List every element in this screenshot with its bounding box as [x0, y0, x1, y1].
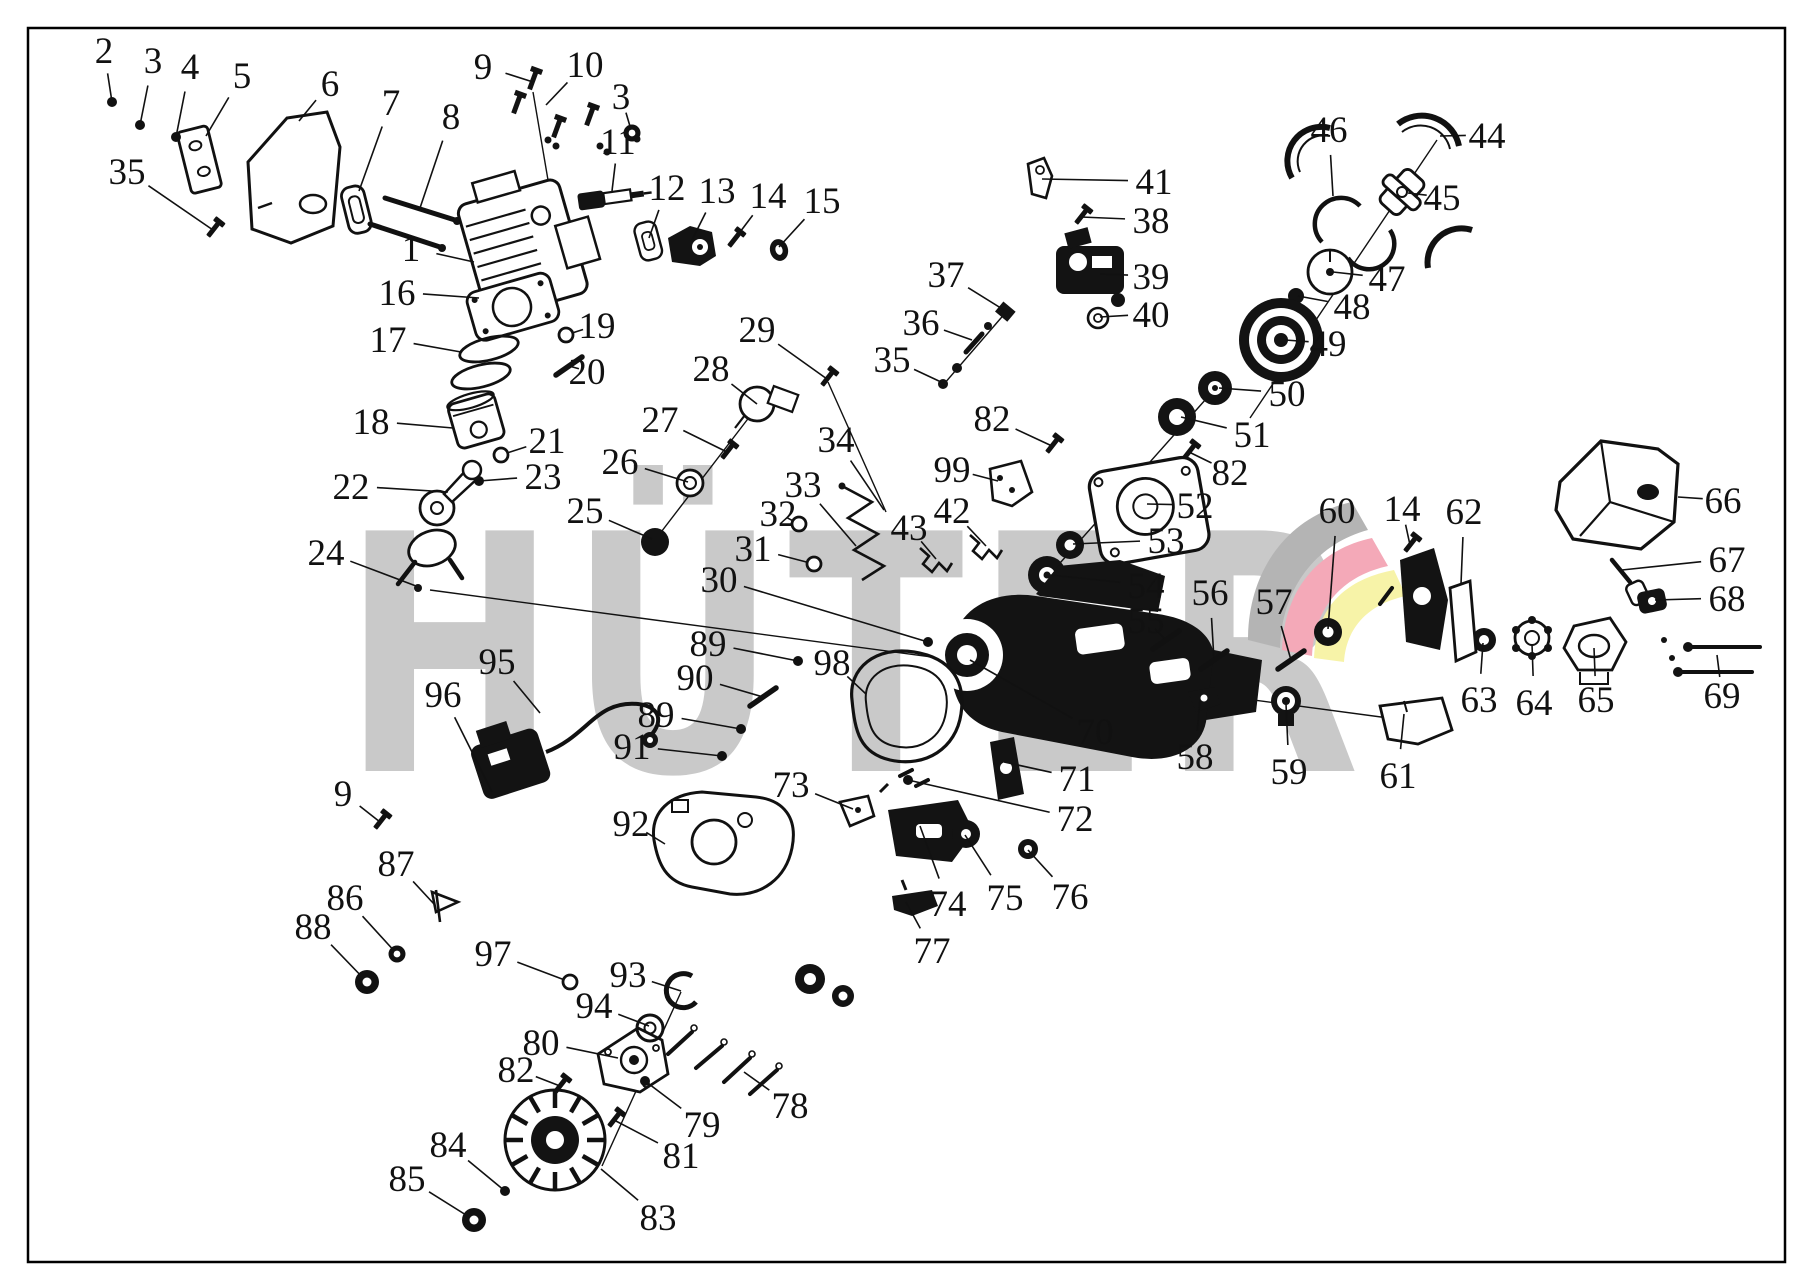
part-glyph-disc — [355, 970, 379, 994]
callouts-layer: 1233456789910111213141415161718192021222… — [95, 31, 1746, 1239]
part-glyph-rod — [750, 688, 776, 706]
part-glyph-dot — [923, 637, 933, 647]
callout-number: 82 — [1212, 453, 1249, 494]
part-glyph-bolt — [370, 808, 392, 832]
callout-number: 81 — [663, 1136, 700, 1177]
carb-gasket-part — [1450, 581, 1476, 661]
leader-line — [140, 85, 148, 125]
leader-line — [1594, 648, 1595, 676]
callout-57: 57 — [1256, 582, 1305, 669]
part-glyph-washer — [389, 946, 406, 963]
leader-line — [420, 141, 443, 208]
spark-plug-part — [577, 184, 653, 211]
part-glyph-dot — [107, 97, 117, 107]
intake-oring-part — [767, 237, 790, 263]
callout-number: 9 — [474, 47, 493, 88]
callout-number: 7 — [382, 83, 401, 124]
leader-line — [733, 648, 798, 661]
callout-number: 45 — [1424, 178, 1461, 219]
callout-number: 1 — [402, 229, 421, 270]
callout-number: 69 — [1704, 676, 1741, 717]
muffler-gasket-part — [340, 184, 374, 235]
carburetor-part — [1056, 227, 1125, 307]
leader-line — [612, 164, 615, 192]
callout-number: 8 — [442, 97, 461, 138]
callout-number: 6 — [321, 64, 340, 105]
leader-line — [1532, 644, 1533, 676]
leader-line — [206, 97, 229, 136]
leader-line — [468, 1161, 505, 1191]
callout-number: 72 — [1057, 799, 1094, 840]
part-glyph-bolt — [1071, 203, 1093, 227]
callout-number: 53 — [1148, 521, 1185, 562]
callout-42: 42 — [934, 491, 1003, 559]
leader-line — [1147, 504, 1173, 505]
leader-line — [1028, 850, 1052, 877]
callout-number: 95 — [479, 642, 516, 683]
callout-11: 11 — [600, 122, 636, 191]
piston-part — [445, 387, 505, 449]
callout-69: 69 — [1704, 655, 1741, 717]
callout-24: 24 — [308, 533, 417, 586]
part-glyph-dot — [500, 1186, 510, 1196]
callout-number: 31 — [735, 529, 772, 570]
callout-98: 98 — [814, 643, 867, 694]
callout-number: 76 — [1052, 877, 1089, 918]
callout-number: 34 — [818, 420, 855, 461]
callout-97: 97 — [475, 934, 578, 989]
carb-mount-part — [1380, 548, 1448, 650]
trigger-bracket-part — [840, 784, 888, 826]
callout-18: 18 — [353, 402, 454, 443]
parts-diagram: HÜTER — [0, 0, 1809, 1283]
callout-90: 90 — [677, 658, 777, 706]
callout-number: 51 — [1234, 415, 1271, 456]
callout-number: 23 — [525, 457, 562, 498]
callout-30: 30 — [701, 560, 934, 647]
callout-44: 44 — [1440, 116, 1506, 157]
leader-line — [658, 749, 722, 756]
callout-26: 26 — [602, 442, 689, 483]
leader-line — [601, 1169, 638, 1200]
callout-5: 5 — [206, 56, 251, 136]
leader-line — [506, 73, 534, 82]
callout-number: 77 — [914, 931, 951, 972]
callout-16: 16 — [379, 273, 480, 314]
callout-number: 3 — [612, 77, 631, 118]
callout-number: 85 — [389, 1159, 426, 1200]
part-glyph-ring — [807, 557, 821, 571]
callout-number: 27 — [642, 400, 679, 441]
crankshaft-part — [398, 461, 481, 592]
callout-85: 85 — [389, 1159, 487, 1232]
callout-number: 50 — [1269, 374, 1306, 415]
callout-25: 25 — [567, 491, 653, 539]
circlip-part — [666, 974, 696, 1008]
callout-93: 93 — [610, 955, 682, 996]
leader-line — [1678, 497, 1703, 499]
callout-number: 2 — [95, 31, 114, 72]
leader-line — [517, 962, 570, 982]
callout-number: 86 — [327, 878, 364, 919]
callout-number: 35 — [109, 152, 146, 193]
callout-40: 40 — [1100, 295, 1170, 336]
callout-number: 39 — [1133, 257, 1170, 298]
leader-line — [414, 344, 461, 352]
callout-99: 99 — [934, 450, 999, 491]
leader-line — [851, 461, 884, 510]
brake-band-spring-part — [839, 483, 885, 581]
callout-number: 74 — [930, 884, 967, 925]
part-glyph-dot — [717, 751, 727, 761]
callout-number: 65 — [1578, 680, 1615, 721]
callout-number: 56 — [1192, 573, 1229, 614]
callout-number: 33 — [785, 465, 822, 506]
callout-83: 83 — [601, 1169, 677, 1239]
callout-number: 82 — [974, 399, 1011, 440]
callout-number: 57 — [1256, 582, 1293, 623]
primer-cup-part — [1088, 308, 1108, 328]
callout-number: 46 — [1311, 110, 1348, 151]
leader-line — [1440, 135, 1466, 136]
callout-7: 7 — [359, 83, 400, 191]
leader-line — [397, 423, 453, 428]
callout-number: 59 — [1271, 752, 1308, 793]
choke-lever-part — [432, 890, 458, 922]
part-glyph-ring — [792, 517, 806, 531]
chain-catcher-part — [990, 461, 1032, 506]
leader-line — [779, 219, 804, 247]
callout-number: 94 — [576, 986, 613, 1027]
callout-number: 97 — [475, 934, 512, 975]
callout-number: 63 — [1461, 680, 1498, 721]
callout-number: 91 — [614, 727, 651, 768]
callout-number: 38 — [1133, 201, 1170, 242]
callout-9: 9 — [334, 774, 393, 832]
callout-number: 49 — [1310, 324, 1347, 365]
leader-line — [744, 587, 928, 642]
part-glyph-bolt — [724, 226, 746, 250]
callout-number: 48 — [1334, 287, 1371, 328]
callout-number: 24 — [308, 533, 345, 574]
callout-number: 62 — [1446, 492, 1483, 533]
chain-guide-plate-part — [990, 737, 1024, 800]
intake-gasket-part — [633, 220, 664, 262]
part-glyph-disc — [462, 1208, 486, 1232]
callout-number: 3 — [144, 41, 163, 82]
callout-17: 17 — [370, 320, 462, 361]
part-glyph-bolt — [817, 365, 839, 389]
callout-35: 35 — [874, 340, 942, 382]
callout-8: 8 — [420, 97, 460, 208]
callout-number: 41 — [1136, 162, 1173, 203]
bushing-parts — [952, 820, 1038, 859]
callout-number: 87 — [378, 844, 415, 885]
callout-29: 29 — [739, 310, 840, 389]
part-glyph-dot — [171, 132, 181, 142]
leader-line — [1328, 536, 1335, 629]
callout-number: 16 — [379, 273, 416, 314]
fuel-tank-part — [1556, 441, 1678, 549]
leader-line — [1081, 217, 1125, 219]
callout-82: 82 — [974, 399, 1065, 456]
callout-46: 46 — [1311, 110, 1348, 196]
callout-27: 27 — [642, 400, 740, 462]
callout-number: 88 — [295, 907, 332, 948]
callout-68: 68 — [1655, 579, 1746, 620]
callout-number: 68 — [1709, 579, 1746, 620]
callout-50: 50 — [1219, 374, 1306, 415]
callout-66: 66 — [1678, 481, 1742, 522]
callout-41: 41 — [1042, 162, 1173, 203]
leader-line — [614, 1120, 658, 1143]
part-glyph-bolt — [1400, 531, 1422, 555]
callout-number: 84 — [430, 1125, 467, 1166]
diagram-canvas: 1233456789910111213141415161718192021222… — [0, 0, 1809, 1283]
flywheel-part — [505, 1090, 605, 1190]
callout-number: 70 — [1077, 712, 1114, 753]
part-glyph-spring — [920, 548, 952, 572]
throttle-bracket-part — [1028, 158, 1052, 198]
starter-pawl-parts — [1158, 116, 1472, 436]
callout-15: 15 — [779, 181, 841, 247]
leader-line — [1461, 537, 1463, 584]
callout-21: 21 — [494, 421, 566, 462]
leader-line — [360, 806, 380, 822]
leader-line — [778, 344, 827, 379]
callout-76: 76 — [1028, 850, 1089, 918]
callout-number: 29 — [739, 310, 776, 351]
callout-37: 37 — [928, 255, 1005, 310]
callout-number: 11 — [600, 122, 636, 163]
callout-number: 60 — [1319, 491, 1356, 532]
case-bolt-set-part — [668, 1025, 782, 1094]
part-glyph-dot — [640, 1076, 650, 1086]
part-glyph-dot — [135, 120, 145, 130]
callout-number: 93 — [610, 955, 647, 996]
part-glyph-dot — [793, 656, 803, 666]
callout-number: 66 — [1705, 481, 1742, 522]
callout-3: 3 — [135, 41, 162, 130]
callout-number: 4 — [181, 47, 200, 88]
leader-line — [359, 126, 382, 191]
callout-20: 20 — [556, 352, 606, 393]
callout-60: 60 — [1319, 491, 1356, 629]
callout-number: 14 — [1384, 489, 1421, 530]
callout-number: 73 — [773, 765, 810, 806]
callout-number: 92 — [613, 804, 650, 845]
part-glyph-ring — [559, 328, 573, 342]
callout-75: 75 — [965, 835, 1024, 919]
callout-36: 36 — [903, 303, 973, 344]
callout-number: 43 — [891, 508, 928, 549]
callout-87: 87 — [378, 844, 435, 904]
callout-number: 64 — [1516, 683, 1553, 724]
part-glyph-ring — [563, 975, 577, 989]
leader-line — [1281, 626, 1291, 660]
callout-89: 89 — [638, 695, 747, 736]
callout-number: 15 — [804, 181, 841, 222]
callout-number: 9 — [334, 774, 353, 815]
callout-number: 30 — [701, 560, 738, 601]
callout-28: 28 — [693, 349, 758, 404]
leader-line — [479, 478, 517, 481]
leader-line — [683, 430, 727, 452]
callout-10: 10 — [546, 45, 604, 105]
leader-line — [914, 369, 941, 382]
callout-number: 13 — [699, 171, 736, 212]
leader-line — [1100, 274, 1128, 275]
callout-34: 34 — [818, 420, 885, 510]
callout-number: 71 — [1059, 759, 1096, 800]
callout-95: 95 — [479, 642, 541, 713]
callout-number: 96 — [425, 675, 462, 716]
callout-number: 47 — [1369, 259, 1406, 300]
part-glyph-dot — [903, 775, 913, 785]
callout-number: 40 — [1133, 295, 1170, 336]
part-glyph-rod — [1278, 651, 1304, 669]
callout-86: 86 — [327, 878, 406, 963]
leader-line — [546, 82, 567, 105]
callout-number: 55 — [1128, 601, 1165, 642]
leader-line — [1622, 562, 1701, 570]
part-glyph-ring — [494, 448, 508, 462]
callout-number: 21 — [529, 421, 566, 462]
callout-number: 90 — [677, 658, 714, 699]
callout-78: 78 — [744, 1072, 809, 1127]
callout-number: 25 — [567, 491, 604, 532]
callout-number: 22 — [333, 467, 370, 508]
callout-number: 10 — [567, 45, 604, 86]
intake-flange-part — [668, 226, 716, 266]
callout-23: 23 — [474, 457, 562, 498]
callout-number: 44 — [1469, 116, 1506, 157]
callout-number: 67 — [1709, 540, 1746, 581]
callout-number: 5 — [233, 56, 252, 97]
leader-line — [609, 520, 652, 539]
callout-14: 14 — [1384, 489, 1423, 555]
part-glyph-dot — [736, 724, 746, 734]
callout-number: 75 — [987, 878, 1024, 919]
heat-plate-part — [177, 125, 222, 194]
callout-number: 36 — [903, 303, 940, 344]
callout-number: 18 — [353, 402, 390, 443]
crankcase-half-part — [653, 792, 793, 894]
leader-line — [682, 719, 741, 729]
leader-line — [968, 288, 1004, 310]
leader-line — [514, 681, 540, 713]
leader-line — [820, 504, 856, 546]
callout-2: 2 — [95, 31, 117, 107]
callout-number: 28 — [693, 349, 730, 390]
bearing-discs-part — [795, 964, 854, 1007]
callout-number: 61 — [1380, 756, 1417, 797]
tank-bolts-part — [1661, 637, 1760, 677]
leader-line — [944, 330, 972, 340]
part-glyph-dot — [474, 476, 484, 486]
callout-31: 31 — [735, 529, 822, 571]
muffler-cover-part — [248, 112, 340, 243]
callout-84: 84 — [430, 1125, 511, 1196]
callout-number: 37 — [928, 255, 965, 296]
callout-number: 26 — [602, 442, 639, 483]
callout-19: 19 — [559, 306, 616, 347]
callout-number: 58 — [1177, 737, 1214, 778]
bar-plate-part — [1380, 698, 1452, 744]
leader-line — [1331, 155, 1333, 196]
leader-line — [720, 684, 763, 697]
leader-line — [645, 1081, 681, 1108]
callout-number: 98 — [814, 643, 851, 684]
part-glyph-bolt — [203, 216, 225, 240]
leader-line — [1042, 179, 1128, 181]
leader-line — [536, 1077, 560, 1086]
callout-number: 78 — [772, 1086, 809, 1127]
callout-number: 83 — [640, 1198, 677, 1239]
callout-number: 99 — [934, 450, 971, 491]
callout-number: 17 — [370, 320, 407, 361]
callout-number: 35 — [874, 340, 911, 381]
leader-line — [1016, 429, 1052, 446]
callout-9: 9 — [474, 47, 533, 88]
callout-62: 62 — [1446, 492, 1483, 584]
part-glyph-spring — [970, 535, 1002, 559]
callout-number: 42 — [934, 491, 971, 532]
part-glyph-bolt — [717, 438, 739, 462]
callout-number: 82 — [498, 1050, 535, 1091]
callout-number: 20 — [569, 352, 606, 393]
part-glyph-bolt — [1042, 432, 1064, 456]
callout-number: 19 — [579, 306, 616, 347]
callout-number: 12 — [649, 168, 686, 209]
callout-number: 14 — [750, 176, 787, 217]
